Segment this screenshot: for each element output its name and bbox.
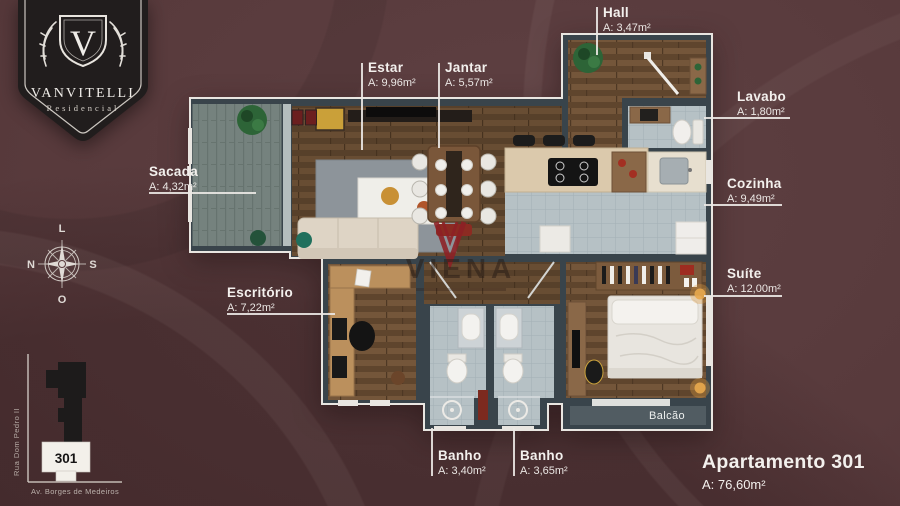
- compass-l: L: [59, 223, 66, 235]
- floorplan-poster: HallA: 3,47m² EstarA: 9,96m² JantarA: 5,…: [0, 0, 900, 506]
- watermark-name: VIENA: [394, 253, 528, 285]
- room-floor-sacada: [193, 104, 282, 246]
- leader-hall: [596, 7, 598, 55]
- label-sacada: SacadaA: 4,32m²: [149, 164, 198, 193]
- label-suite: SuíteA: 12,00m²: [727, 266, 781, 295]
- label-hall: HallA: 3,47m²: [603, 5, 651, 34]
- dining-furniture: [412, 146, 496, 236]
- brand-name: VANVITELLI: [31, 86, 135, 101]
- label-banho2: BanhoA: 3,65m²: [520, 448, 568, 477]
- sacada-window-strip: [283, 104, 291, 246]
- leader-banho2: [513, 428, 515, 476]
- compass-s: S: [89, 259, 96, 271]
- balcony-label: Balcão: [630, 410, 704, 422]
- watermark-underline: [416, 288, 506, 291]
- site-building-footprint: [46, 362, 86, 442]
- brand-badge: V VANVITELLI Residencial: [16, 0, 150, 146]
- site-unit-number: 301: [55, 451, 78, 466]
- compass-o: O: [58, 294, 67, 304]
- apartment-area: A: 76,60m²: [702, 477, 865, 492]
- label-escritorio: EscritórioA: 7,22m²: [227, 285, 293, 314]
- label-cozinha: CozinhaA: 9,49m²: [727, 176, 782, 205]
- compass-rose: L N S O: [24, 220, 100, 304]
- leader-banho1: [431, 428, 433, 476]
- leader-jantar: [438, 63, 440, 148]
- badge-monogram: V: [70, 23, 96, 63]
- street-left-label: Rua Dom Pedro II: [12, 408, 21, 476]
- label-banho1: BanhoA: 3,40m²: [438, 448, 486, 477]
- leader-suite: [704, 295, 782, 297]
- label-lavabo: LavaboA: 1,80m²: [737, 89, 786, 118]
- apartment-title: Apartamento 301: [702, 451, 865, 474]
- apartment-summary: Apartamento 301 A: 76,60m²: [702, 451, 865, 492]
- label-jantar: JantarA: 5,57m²: [445, 60, 493, 89]
- leader-estar: [361, 63, 363, 150]
- badge-shape: [18, 0, 148, 141]
- site-map: 301 Rua Dom Pedro II Av. Borges de Medei…: [8, 346, 136, 502]
- label-estar: EstarA: 9,96m²: [368, 60, 416, 89]
- street-bottom-label: Av. Borges de Medeiros: [31, 487, 119, 496]
- brand-subtitle: Residencial: [47, 103, 120, 113]
- compass-n: N: [27, 259, 35, 271]
